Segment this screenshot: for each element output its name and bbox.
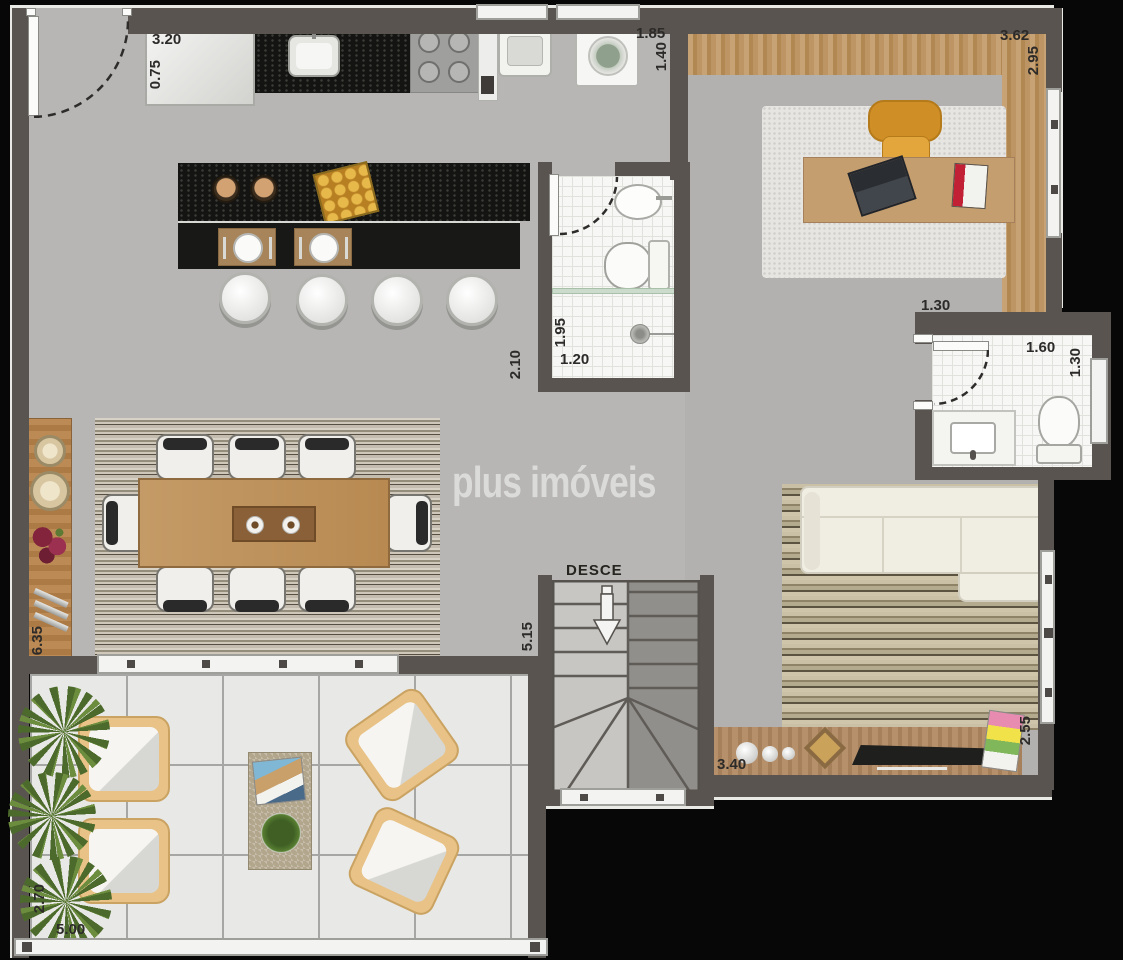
sliding-door-handle [202,660,210,668]
dim-kitchen-cabinet-depth: 0.75 [148,60,163,89]
shower-rail [650,333,676,335]
chair-cushion [359,817,449,905]
cabinet-strip-panel [481,76,494,94]
rail-post [22,942,32,952]
bar-stool [296,274,348,326]
cup [282,516,300,534]
dim-terrace-depth: 2.70 [32,884,47,913]
tv-rack [712,727,1022,775]
bar-stool [219,272,271,324]
bar-stool [371,274,423,326]
office-window-handle [1051,120,1058,129]
laundry-window [476,4,548,20]
lavabo-window [1090,358,1108,444]
washing-machine-drum [588,36,628,76]
table-magazines [252,757,306,806]
dim-sideboard-length: 6.35 [30,626,45,655]
entry-door-jamb [26,8,36,16]
chair-headrest [235,600,279,612]
lavabo-toilet-bowl [1038,396,1080,448]
dim-laundry-width: 1.85 [636,26,665,41]
decor-flowers [30,521,72,567]
dim-bath1-width: 1.20 [560,352,589,367]
plate [233,233,263,263]
bar-stool [446,274,498,326]
shower-glass-partition [552,288,676,294]
table-tray [232,506,316,542]
kitchen-sink-basin [296,43,332,69]
laptop [847,155,916,217]
entry-door-swing-arc [33,18,129,118]
dining-chair [298,434,356,480]
rail-post [530,942,540,952]
window-handle [1045,575,1052,584]
shower-drain [630,324,650,344]
chair-headrest [163,600,207,612]
wall-stairs-left [538,575,552,806]
wall-bath1-bottom [538,378,690,392]
placemat [294,228,352,266]
wall-office-right-bottom [1046,233,1062,313]
burner [418,31,440,53]
dim-laundry-depth: 1.40 [654,42,669,71]
lavabo-door-gap [915,344,932,400]
utensil [223,237,226,259]
dim-office-width: 3.62 [1000,28,1029,43]
dining-chair [228,434,286,480]
office-desk [803,157,1015,223]
decor-plate [30,471,70,511]
wall-terrace-top-right [398,656,548,674]
bath1-faucet [656,196,672,200]
laundry-window [556,4,640,20]
plate [309,233,339,263]
bath1-door-swing-arc [559,176,619,236]
bath1-door-leaf [549,174,559,236]
wall-laundry-office-divider [670,8,688,180]
dim-lavabo-outer: 1.30 [921,298,950,313]
wall-living-bottom [700,775,1052,797]
floor-plan: 3.20 0.75 1.85 1.40 [0,0,1123,960]
dim-bath1-depth: 1.95 [553,318,568,347]
sofa-seat-seam [882,516,884,572]
cabinet-strip [478,23,498,101]
office-window-handle [1051,185,1058,194]
kitchen-island [178,163,530,221]
dining-chair [156,566,214,612]
office-wood-wardrobe-top [688,30,1036,75]
stairs-desce-label: DESCE [566,562,623,579]
chair-headrest [106,501,118,545]
dim-lavabo-depth: 1.30 [1068,348,1083,377]
burner [448,61,470,83]
chair-headrest [305,600,349,612]
decor-sphere [762,746,778,762]
decor-frame [804,727,846,769]
outer-outline-living-bottom [700,797,1052,800]
placemat [218,228,276,266]
sliding-door-handle [279,660,287,668]
watermark: plus imóveis [452,458,656,508]
decor-plate [34,435,66,467]
window-handle [1045,688,1052,697]
wall-bath1-right [674,162,690,392]
dim-kitchen-cabinet-width: 3.20 [152,32,181,47]
chair-headrest [305,438,349,450]
entry-door-jamb [122,8,132,16]
window-handle [656,794,664,801]
stairs-bottom-window [560,788,686,806]
chair-headrest [163,438,207,450]
lavabo-door-swing-arc [933,349,989,405]
wall-office-right-top [1046,8,1062,92]
lavabo-door-jamb [913,334,933,343]
tv [852,745,998,765]
burner [418,61,440,83]
potted-plant [261,813,301,853]
sofa-armrest [804,492,820,570]
sliding-door-handle [355,660,363,668]
dining-table [138,478,390,568]
lavabo-vanity [932,410,1016,466]
dim-living-depth: 2.55 [1018,716,1033,745]
plant [8,772,96,860]
terrace-coffee-table [248,752,312,870]
terrace-sliding-door [97,654,399,674]
window-handle [580,794,588,801]
utensil [299,237,302,259]
bowl [250,175,278,203]
lavabo-door-jamb [913,401,933,410]
decor-sphere [782,747,795,760]
toilet-bowl [604,242,652,290]
window-handle [1044,628,1053,638]
island-bar-counter [178,221,520,269]
stairs-arrow-tail [602,586,612,594]
dim-terrace-width: 5.00 [56,922,85,937]
dim-bath1-side: 2.10 [508,350,523,379]
outer-outline-stairs-bottom [538,806,714,809]
burner [448,31,470,53]
plant [18,686,110,778]
bowl [212,175,240,203]
dim-lavabo-width: 1.60 [1026,340,1055,355]
tv-shelf [877,767,947,770]
dining-chair [386,494,432,552]
cup [246,516,264,534]
sliding-door-handle [127,660,135,668]
sofa [800,486,1046,574]
utensil [269,237,272,259]
bath1-sink [614,184,662,220]
lavabo-faucet [970,450,976,460]
lavabo-toilet-base [1036,444,1082,464]
wall-left [12,8,29,662]
dim-tv-rack-width: 3.40 [717,757,746,772]
fruit-tray [313,161,380,225]
dim-stairs-length: 5.15 [520,622,535,651]
office-window [1046,88,1061,238]
dim-office-depth: 2.95 [1026,46,1041,75]
toilet-tank [648,240,670,290]
kitchen-sink [288,35,340,77]
terrace-rail [14,938,548,956]
utensil [345,237,348,259]
laundry-tub-basin [507,36,543,66]
dining-chair [228,566,286,612]
wall-top-office [665,8,1052,34]
dining-chair [156,434,214,480]
chair-headrest [235,438,279,450]
magazine [952,163,989,209]
dining-chair [298,566,356,612]
sofa-seat-seam [960,516,962,572]
chair-headrest [416,501,428,545]
sofa-back-seam [802,516,1044,518]
staircase [552,580,700,792]
wall-stairs-right [700,575,714,806]
